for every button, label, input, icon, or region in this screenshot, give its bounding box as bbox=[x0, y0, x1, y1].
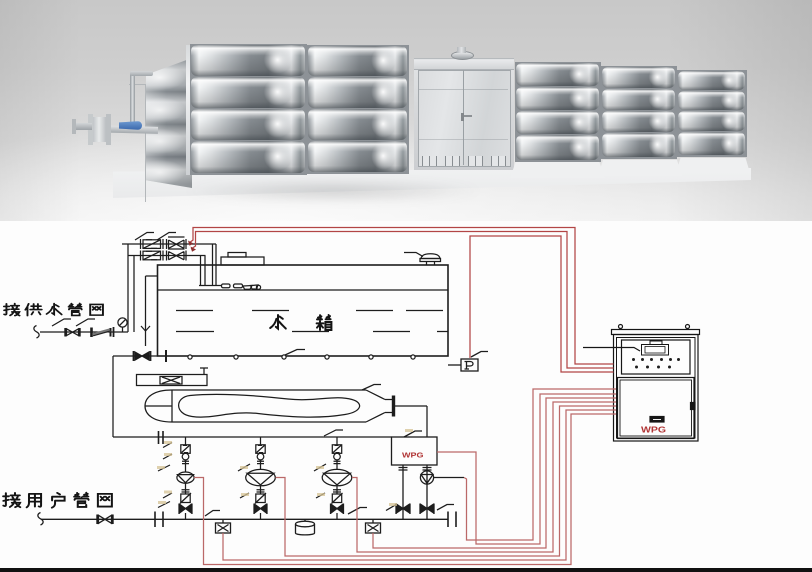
svg-text:WPG: WPG bbox=[641, 425, 666, 435]
svg-text:WPG: WPG bbox=[402, 450, 423, 459]
